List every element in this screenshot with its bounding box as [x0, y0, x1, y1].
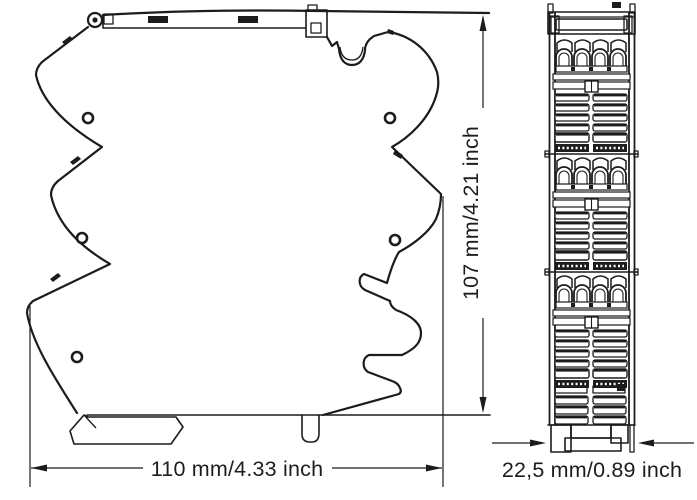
front-foot — [548, 425, 635, 452]
lower-marking-rows — [555, 384, 626, 424]
front-view — [545, 2, 638, 452]
depth-dimension: 22,5 mm/0.89 inch — [492, 440, 694, 483]
bar-slot — [238, 16, 258, 23]
height-dimension-label: 107 mm/4.21 inch — [459, 126, 483, 300]
dimensional-drawing: 110 mm/4.33 inch 107 mm/4.21 inch 22,5 m… — [0, 0, 697, 500]
bottom-release-tab — [302, 415, 319, 442]
edge-vent-ticks — [50, 29, 403, 282]
side-view — [27, 5, 490, 444]
top-cap — [548, 2, 635, 34]
depth-dimension-label: 22,5 mm/0.89 inch — [502, 458, 682, 482]
din-rail-top-bar — [88, 5, 489, 37]
width-dimension-label: 110 mm/4.33 inch — [151, 457, 324, 481]
din-rail-hook — [327, 32, 437, 72]
housing-right-edge — [323, 72, 441, 415]
height-dimension: 107 mm/4.21 inch — [459, 15, 487, 413]
housing-left-edge — [27, 27, 110, 413]
front-view-terminal-section — [553, 40, 630, 152]
top-edge-and-extension-line — [103, 11, 489, 16]
fixing-holes — [72, 113, 400, 362]
front-view-terminal-section — [553, 158, 630, 270]
top-nub — [612, 2, 621, 8]
front-view-terminal-section — [553, 276, 630, 388]
bottom-foot — [70, 415, 183, 444]
technical-drawing-canvas: 110 mm/4.33 inch 107 mm/4.21 inch 22,5 m… — [0, 0, 697, 500]
bar-slot — [148, 16, 168, 23]
